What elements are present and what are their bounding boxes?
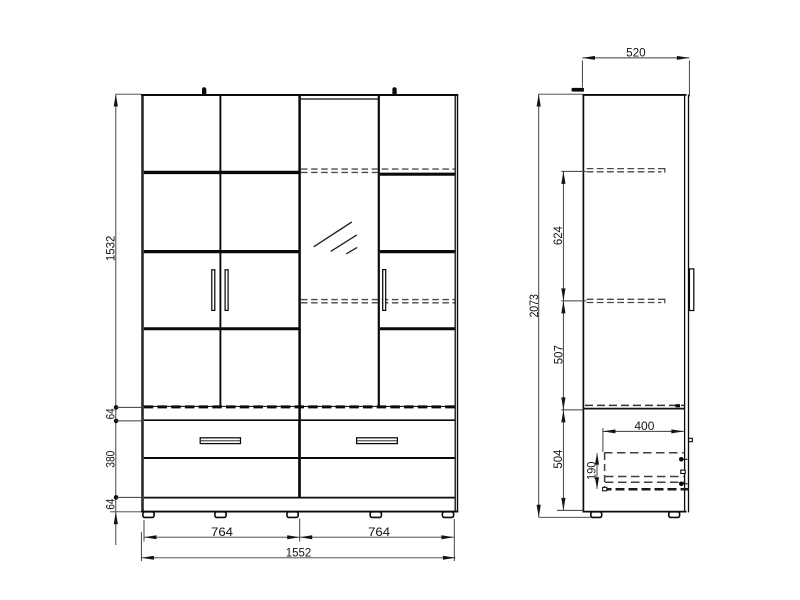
svg-text:380: 380: [106, 451, 118, 468]
svg-text:520: 520: [626, 47, 646, 59]
svg-text:2073: 2073: [529, 294, 541, 318]
svg-text:764: 764: [211, 527, 234, 539]
svg-text:624: 624: [553, 226, 565, 246]
svg-text:764: 764: [368, 527, 391, 539]
svg-text:190: 190: [587, 462, 599, 481]
svg-text:1532: 1532: [106, 236, 118, 262]
svg-text:507: 507: [554, 345, 566, 364]
svg-text:504: 504: [553, 449, 565, 469]
svg-text:64: 64: [106, 408, 118, 420]
svg-text:64: 64: [106, 498, 118, 510]
svg-text:1552: 1552: [286, 548, 312, 560]
svg-text:400: 400: [634, 421, 654, 433]
